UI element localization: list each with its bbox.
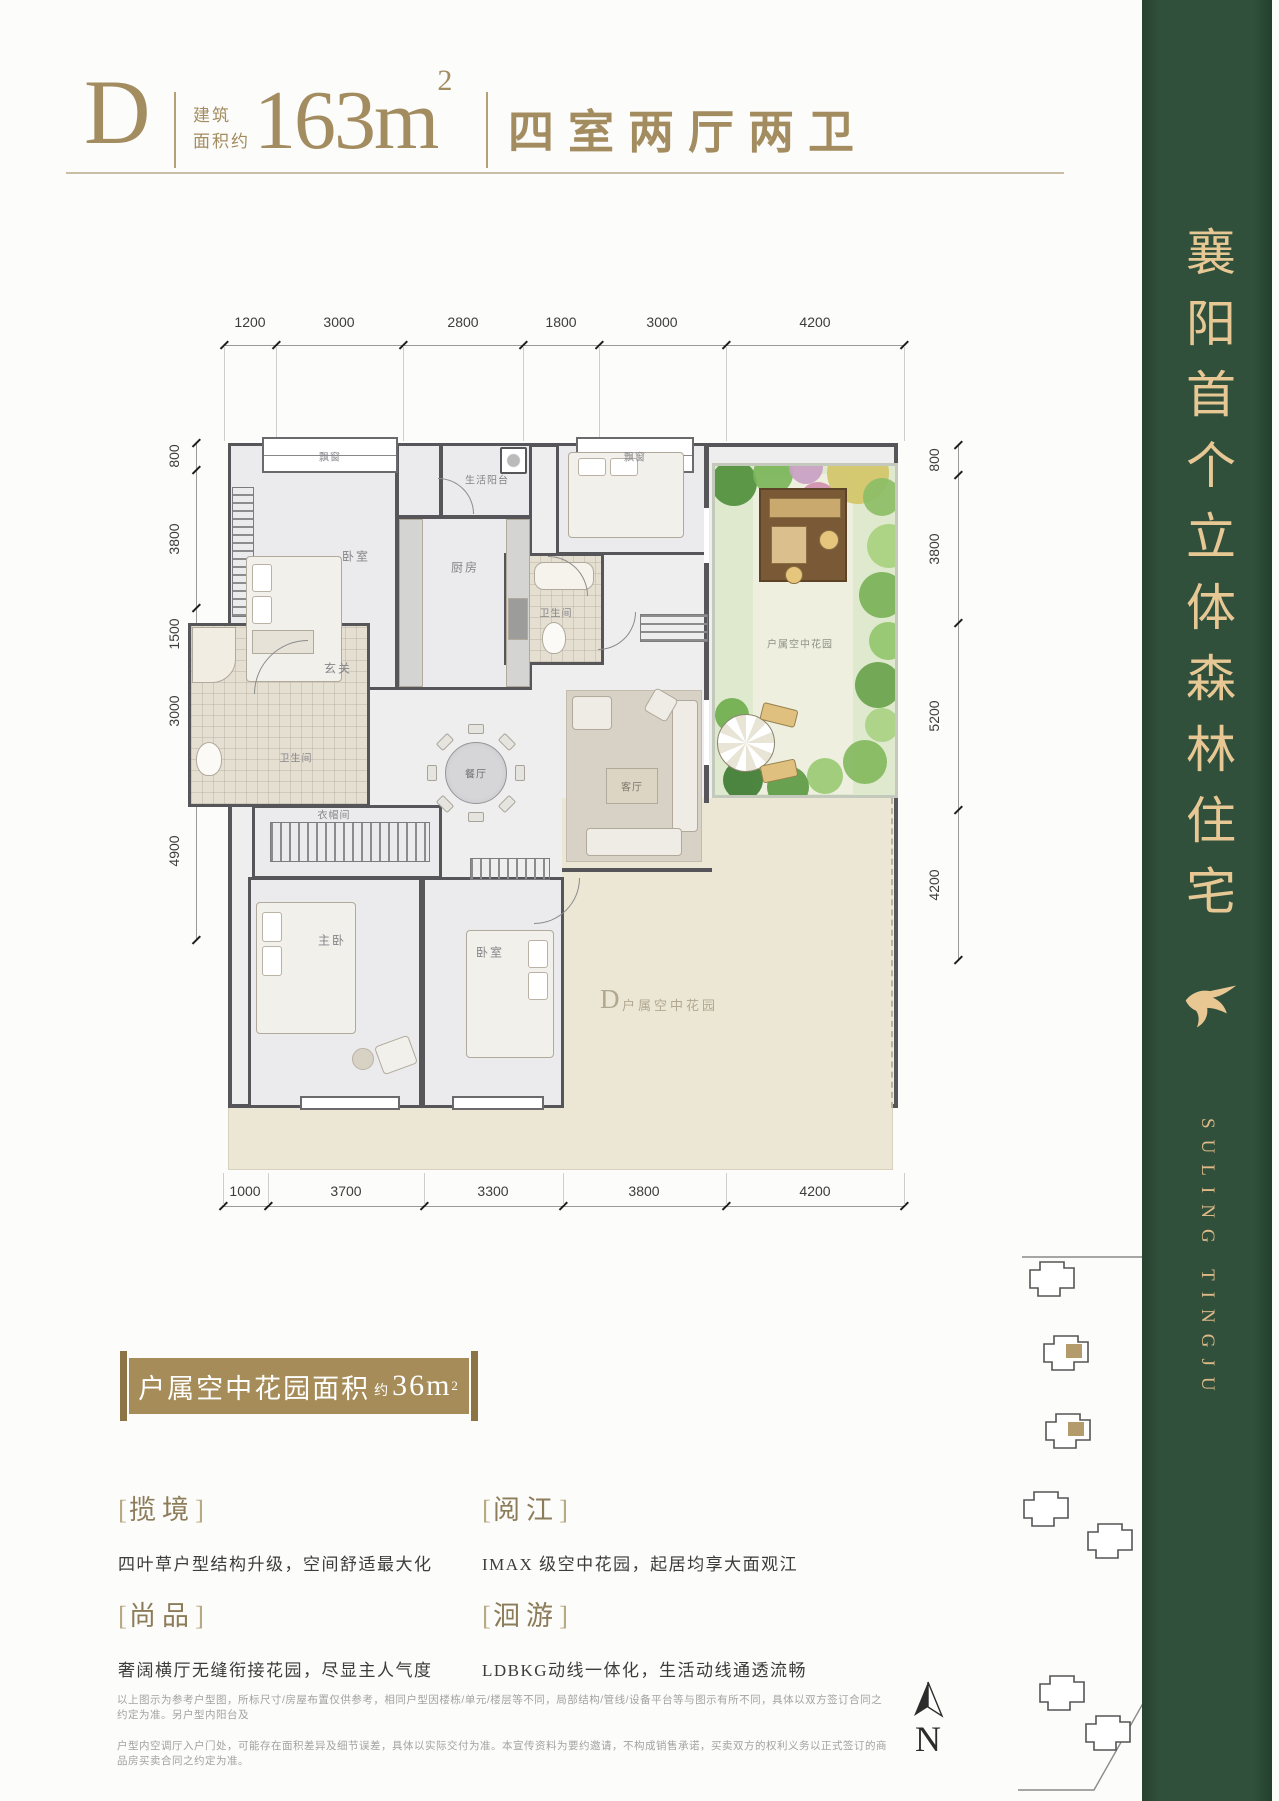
wardrobe-hatch [270, 822, 430, 862]
area-number: 163m [254, 74, 437, 167]
bracket: [ [482, 1601, 493, 1631]
site-buildings [1024, 1262, 1132, 1750]
room-label-dining: 餐厅 [465, 766, 487, 781]
window-bedroom-bottom [452, 1096, 544, 1110]
room-label-foyer: 玄关 [324, 660, 352, 677]
tree [855, 662, 898, 708]
north-label: N [915, 1718, 941, 1760]
chair [468, 724, 484, 734]
room-label-living: 客厅 [621, 779, 643, 794]
area-prefix-line2: 面积约 [193, 129, 250, 155]
site-building [1040, 1676, 1084, 1710]
feature-title-text: 阅江 [493, 1495, 559, 1525]
pillow [528, 972, 548, 1000]
dim-top-5: 3000 [646, 314, 677, 330]
north-arrow-right [928, 1682, 942, 1716]
dim-left-1: 800 [166, 444, 182, 467]
dim-bottom-2: 3700 [330, 1183, 361, 1199]
dim-guide [224, 346, 225, 441]
armchair-living [572, 696, 612, 730]
sofa-back [586, 828, 682, 856]
shaft [396, 443, 442, 518]
site-building [1086, 1716, 1130, 1750]
dim-top-2: 3000 [323, 314, 354, 330]
toilet-left [196, 742, 222, 776]
pillow [528, 940, 548, 968]
dim-tick [192, 935, 201, 944]
banner-slogan: 襄阳首个立体森林住宅 [1171, 226, 1243, 936]
dim-guide [726, 346, 727, 441]
dim-guide [904, 346, 905, 441]
sky-garden [712, 463, 898, 798]
garden-area-badge: 户属空中花园面积约36m2 [129, 1358, 469, 1414]
pavilion-table [771, 526, 807, 564]
site-building [1024, 1492, 1068, 1526]
area-prefix: 建筑 面积约 [193, 103, 250, 156]
header-divider [174, 92, 176, 168]
ac-platform [640, 614, 708, 642]
room-label-bath-left: 卫生间 [280, 750, 313, 765]
dim-left-2: 3800 [166, 523, 182, 554]
room-label-bedroom-bottom: 卧室 [476, 944, 504, 961]
tree [843, 740, 887, 784]
terrace-strip [228, 1108, 893, 1170]
north-arrow-icon [914, 1682, 942, 1716]
dim-guide [599, 346, 600, 441]
kitchen-counter-left [399, 519, 423, 687]
dim-guide [904, 1173, 905, 1205]
feature-title-text: 尚品 [129, 1601, 195, 1631]
pavilion-stool [819, 530, 839, 550]
tree [807, 758, 843, 794]
terrace-label-d: D [600, 984, 623, 1015]
disclaimer-line-2: 户型内空调厅入户门处，可能存在面积差异及细节误差，具体以实际交付为准。本宣传资料… [117, 1738, 887, 1768]
bracket: [ [482, 1495, 493, 1525]
pouf [352, 1048, 374, 1070]
area-prefix-line1: 建筑 [193, 103, 250, 129]
swallow-icon [1182, 983, 1238, 1029]
room-label-balcony: 生活阳台 [465, 472, 509, 487]
badge-bar-right [471, 1351, 478, 1421]
tree [863, 478, 898, 516]
brand-banner: 襄阳首个立体森林住宅 SULING TINGJU [1142, 0, 1272, 1801]
badge-value: 36m [392, 1369, 451, 1403]
feature-desc-4: LDBKG动线一体化，生活动线通透流畅 [482, 1656, 807, 1681]
unit-letter: D [84, 66, 150, 158]
window-master [300, 1096, 400, 1110]
dim-left-3: 1500 [166, 618, 182, 649]
pillow [262, 912, 282, 942]
disclaimer-line-1: 以上图示为参考户型图，所标尺寸/房屋布置仅供参考，相同户型因楼栋/单元/楼层等不… [117, 1692, 887, 1722]
terrace-label: 户属空中花园 [622, 995, 718, 1014]
feature-desc-3: 奢阔横厅无缝衔接花园，尽显主人气度 [118, 1656, 433, 1681]
bracket: ] [195, 1495, 206, 1525]
tree [859, 572, 898, 618]
pavilion [759, 488, 847, 582]
dim-guide [424, 1173, 425, 1205]
room-label-cloak: 衣帽间 [318, 807, 351, 822]
pillow [262, 946, 282, 976]
chair [515, 765, 525, 781]
dim-guide [223, 1173, 224, 1205]
north-arrow-left [914, 1682, 928, 1716]
room-label-bath-top: 卫生间 [540, 605, 573, 620]
dim-left-4: 3000 [166, 695, 182, 726]
pillow [578, 458, 606, 476]
dim-right-1: 800 [926, 448, 942, 471]
feature-title-text: 洄游 [493, 1601, 559, 1631]
site-building-highlight [1066, 1344, 1082, 1358]
bracket: ] [559, 1495, 570, 1525]
room-label-kitchen: 厨房 [451, 559, 479, 576]
dim-right-2: 3800 [926, 533, 942, 564]
header-divider-2 [486, 92, 488, 168]
dim-guide [276, 346, 277, 441]
dim-bottom-5: 4200 [799, 1183, 830, 1199]
washer [500, 447, 527, 474]
bracket: ] [195, 1601, 206, 1631]
feature-title-3: [尚品] [118, 1594, 206, 1633]
dim-top-1: 1200 [234, 314, 265, 330]
toilet-top [542, 622, 566, 654]
dim-bottom-4: 3800 [628, 1183, 659, 1199]
dim-bottom-1: 1000 [229, 1183, 260, 1199]
dim-right-3: 5200 [926, 700, 942, 731]
dim-bottom-3: 3300 [477, 1183, 508, 1199]
feature-desc-2: IMAX 级空中花园，起居均享大面观江 [482, 1550, 798, 1575]
hall-terrace-wall [562, 868, 712, 872]
dim-top-3: 2800 [447, 314, 478, 330]
dim-guide [563, 1173, 564, 1205]
pillow [252, 564, 272, 592]
pillow [252, 596, 272, 624]
bracket: ] [559, 1601, 570, 1631]
feature-desc-1: 四叶草户型结构升级，空间舒适最大化 [118, 1550, 433, 1575]
bracket: [ [118, 1495, 129, 1525]
dim-line-top [224, 345, 904, 346]
poster-page: D 建筑 面积约 163m2 四室两厅两卫 1200 3000 2800 180… [0, 0, 1279, 1801]
chair [468, 812, 484, 822]
garden-window [704, 700, 709, 765]
dim-right-4: 4200 [926, 869, 942, 900]
dim-guide [726, 1173, 727, 1205]
tree [712, 463, 757, 506]
room-label-bay2: 飘窗 [624, 449, 646, 464]
pavilion-sofa [769, 498, 841, 518]
pavilion-stool [785, 566, 803, 584]
dim-left-5: 4900 [166, 835, 182, 866]
badge-text: 户属空中花园面积 [138, 1367, 370, 1406]
dim-tick [954, 955, 963, 964]
dim-guide [268, 1173, 269, 1205]
area-superscript: 2 [437, 64, 452, 97]
site-building-highlight [1068, 1422, 1084, 1436]
chair [427, 765, 437, 781]
tree [865, 708, 898, 742]
feature-title-1: [揽境] [118, 1488, 206, 1527]
shower [192, 627, 236, 683]
layout-title: 四室两厅两卫 [508, 96, 868, 162]
tree [867, 524, 898, 568]
banner-brand-en: SULING TINGJU [1196, 1118, 1218, 1402]
tree [869, 622, 898, 660]
dim-guide [403, 346, 404, 441]
header-underline [66, 172, 1064, 174]
garden-window [704, 508, 709, 563]
feature-title-text: 揽境 [129, 1495, 195, 1525]
dim-line-right [958, 445, 959, 960]
badge-bar-left [120, 1351, 127, 1421]
badge-approx: 约 [374, 1380, 390, 1400]
site-building [1088, 1524, 1132, 1558]
feature-title-4: [洄游] [482, 1594, 570, 1633]
dim-top-4: 1800 [545, 314, 576, 330]
bracket: [ [118, 1601, 129, 1631]
area-value: 163m2 [254, 66, 452, 163]
room-label-bedroom-top: 卧室 [342, 548, 370, 565]
dim-top-6: 4200 [799, 314, 830, 330]
feature-title-2: [阅江] [482, 1488, 570, 1527]
dim-guide [523, 346, 524, 441]
room-label-bay1: 飘窗 [319, 449, 341, 464]
site-building [1030, 1262, 1074, 1296]
stove [508, 598, 528, 640]
badge-sup: 2 [451, 1378, 460, 1394]
room-label-master: 主卧 [318, 932, 346, 949]
garden-label: 户属空中花园 [767, 636, 833, 651]
window-hatch [470, 858, 550, 880]
sofa-long [672, 700, 698, 832]
